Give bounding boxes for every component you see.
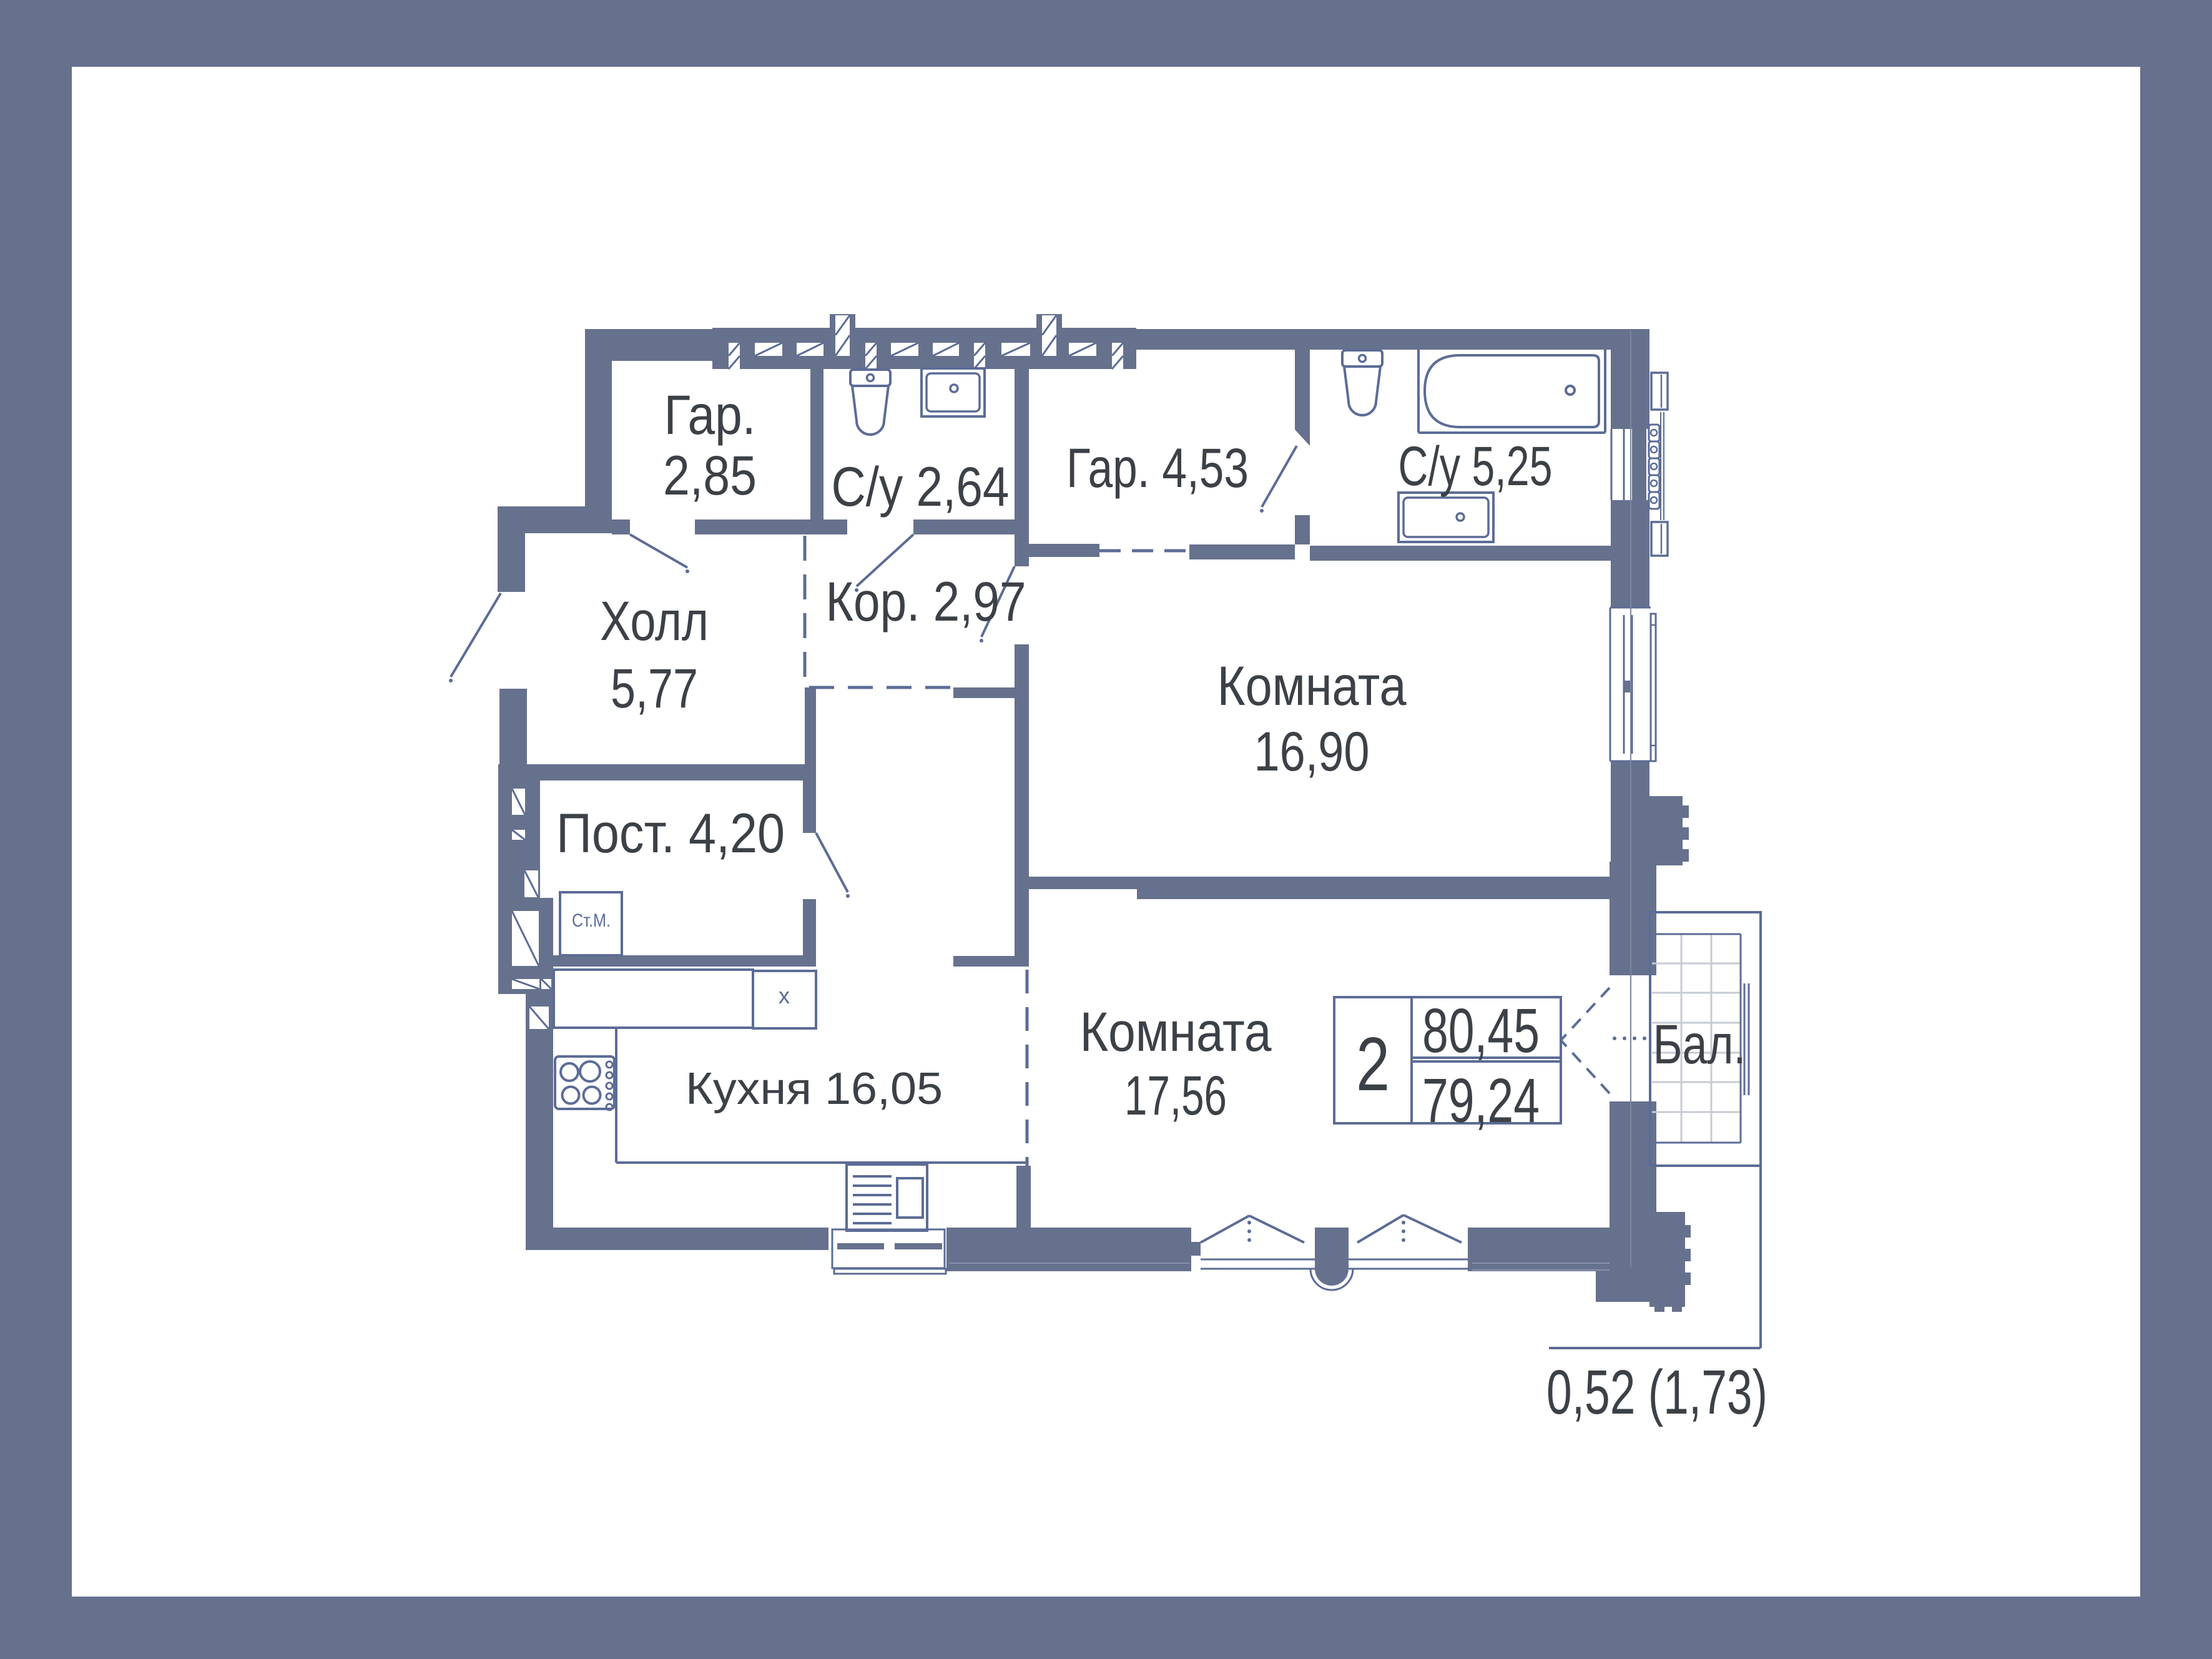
svg-text:Гар. 4,53: Гар. 4,53	[1066, 436, 1249, 499]
svg-text:80,45: 80,45	[1422, 996, 1540, 1066]
svg-text:Гар.: Гар.	[664, 383, 756, 446]
svg-text:5,77: 5,77	[611, 657, 698, 719]
svg-text:Комната: Комната	[1080, 1000, 1272, 1063]
svg-text:Бал.: Бал.	[1653, 1013, 1746, 1075]
svg-text:С/у 2,64: С/у 2,64	[832, 455, 1010, 518]
svg-text:2: 2	[1356, 1021, 1390, 1106]
svg-text:Комната: Комната	[1217, 654, 1407, 717]
svg-text:16,90: 16,90	[1254, 720, 1370, 782]
svg-text:Ст.М.: Ст.М.	[572, 910, 611, 931]
svg-text:79,24: 79,24	[1422, 1066, 1540, 1136]
svg-text:Кухня 16,05: Кухня 16,05	[686, 1064, 943, 1114]
svg-text:2,85: 2,85	[663, 444, 757, 506]
svg-text:С/у 5,25: С/у 5,25	[1398, 435, 1553, 497]
svg-text:17,56: 17,56	[1124, 1064, 1227, 1126]
svg-text:0,52 (1,73): 0,52 (1,73)	[1546, 1357, 1767, 1427]
svg-text:х: х	[779, 983, 790, 1008]
svg-text:Холл: Холл	[600, 589, 709, 652]
svg-text:Пост. 4,20: Пост. 4,20	[556, 802, 785, 864]
svg-text:Кор. 2,97: Кор. 2,97	[826, 570, 1026, 633]
